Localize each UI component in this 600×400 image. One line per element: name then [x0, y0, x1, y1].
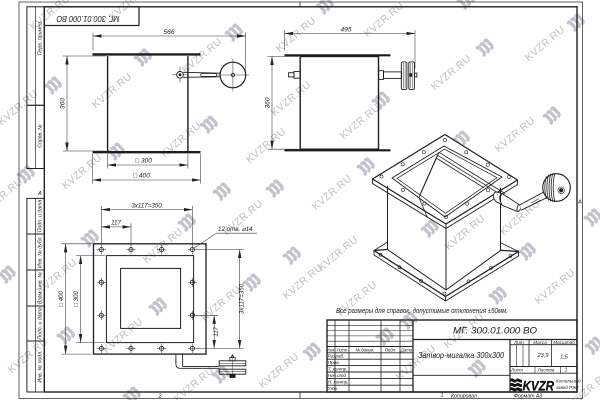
svg-text:Лит.: Лит. — [513, 340, 525, 345]
svg-text:12 отв. ⌀14: 12 отв. ⌀14 — [218, 226, 253, 233]
svg-text:Формат А3: Формат А3 — [514, 393, 542, 399]
svg-text:Котельный: Котельный — [556, 378, 581, 384]
svg-text:117: 117 — [111, 220, 121, 227]
svg-text:1:5: 1:5 — [560, 355, 569, 361]
svg-text:360: 360 — [264, 97, 271, 108]
svg-text:□ 400: □ 400 — [58, 291, 65, 307]
svg-text:Затвор-мигалка 300х300: Затвор-мигалка 300х300 — [418, 350, 504, 360]
svg-text:Дата: Дата — [400, 347, 413, 352]
svg-text:Масса: Масса — [533, 340, 547, 345]
svg-text:Лист: Лист — [336, 347, 348, 352]
svg-text:Инв. № подл.: Инв. № подл. — [38, 350, 44, 382]
svg-text:Листов: Листов — [537, 368, 555, 373]
svg-text:Н. контр.: Н. контр. — [328, 379, 349, 384]
svg-text:Взам. инв. №: Взам. инв. № — [38, 272, 44, 304]
svg-text:МГ. 300.01.000 ВО: МГ. 300.01.000 ВО — [453, 326, 537, 336]
svg-text:Инв. № дубл.: Инв. № дубл. — [38, 236, 44, 268]
svg-text:3х117=350: 3х117=350 — [238, 283, 245, 314]
svg-text:Разраб.: Разраб. — [328, 354, 345, 359]
svg-text:495: 495 — [340, 26, 351, 33]
svg-text:А: А — [37, 191, 42, 197]
svg-text:360: 360 — [59, 98, 66, 109]
svg-text:3х117=350: 3х117=350 — [131, 202, 162, 209]
svg-text:□ 300: □ 300 — [135, 158, 152, 165]
svg-text:Подп. и дата: Подп. и дата — [38, 307, 44, 340]
svg-text:№ докум.: № докум. — [356, 347, 375, 352]
svg-text:Копировал: Копировал — [451, 393, 477, 399]
svg-text:1: 1 — [565, 368, 568, 374]
svg-text:Т. контр.: Т. контр. — [328, 367, 348, 372]
svg-text:23,9: 23,9 — [537, 353, 549, 359]
svg-text:завод РЭП: завод РЭП — [555, 385, 579, 390]
svg-text:Перв. примен.: Перв. примен. — [38, 21, 44, 55]
svg-text:Пров.: Пров. — [328, 360, 340, 365]
svg-text:Подп. и дата: Подп. и дата — [38, 200, 44, 233]
svg-text:Справ. №: Справ. № — [38, 124, 44, 148]
svg-text:Масштаб: Масштаб — [553, 340, 575, 345]
svg-text:2: 2 — [157, 394, 161, 400]
svg-text:KVZR: KVZR — [523, 379, 555, 394]
svg-text:1: 1 — [440, 393, 443, 399]
svg-text:Нач.отд: Нач.отд — [328, 373, 347, 378]
svg-text:566: 566 — [163, 29, 174, 36]
svg-text:117: 117 — [213, 326, 220, 336]
svg-text:□ 300: □ 300 — [73, 291, 80, 307]
svg-text:□ 400: □ 400 — [133, 173, 150, 180]
svg-text:Лист: Лист — [510, 368, 523, 373]
svg-text:Утв.: Утв. — [328, 386, 338, 391]
svg-text:МГ. 300.01.000 ВО: МГ. 300.01.000 ВО — [56, 14, 119, 24]
svg-text:Изм.: Изм. — [327, 347, 336, 352]
svg-text:А: А — [577, 200, 582, 206]
svg-text:Все размеры для справок, допус: Все размеры для справок, допустимые откл… — [336, 306, 508, 315]
svg-text:Подп.: Подп. — [385, 347, 396, 352]
